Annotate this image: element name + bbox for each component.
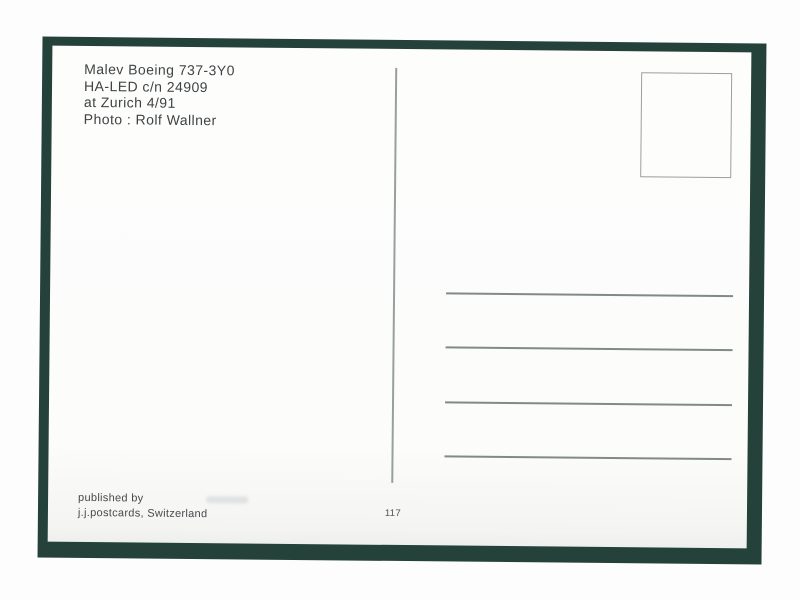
address-line-1 — [446, 292, 733, 297]
address-line-4 — [444, 455, 731, 460]
publisher-block: published by j.j.postcards, Switzerland — [78, 491, 208, 522]
address-line-2 — [446, 346, 733, 351]
card-number: 117 — [385, 508, 401, 519]
publisher-line-2: j.j.postcards, Switzerland — [78, 506, 208, 522]
divider-line — [391, 68, 396, 483]
smudge-mark — [206, 496, 248, 503]
address-line-3 — [445, 401, 732, 406]
postcard-mat: Malev Boeing 737-3Y0 HA-LED c/n 24909 at… — [38, 37, 767, 565]
stamp-box — [640, 72, 732, 178]
caption-line-photographer: Photo : Rolf Wallner — [84, 110, 235, 128]
caption-block: Malev Boeing 737-3Y0 HA-LED c/n 24909 at… — [84, 61, 235, 128]
postcard-back: Malev Boeing 737-3Y0 HA-LED c/n 24909 at… — [48, 46, 752, 549]
publisher-line-1: published by — [78, 491, 208, 507]
caption-line-registration: HA-LED c/n 24909 — [84, 77, 235, 95]
caption-line-location: at Zurich 4/91 — [84, 94, 235, 112]
caption-line-aircraft: Malev Boeing 737-3Y0 — [84, 61, 235, 79]
